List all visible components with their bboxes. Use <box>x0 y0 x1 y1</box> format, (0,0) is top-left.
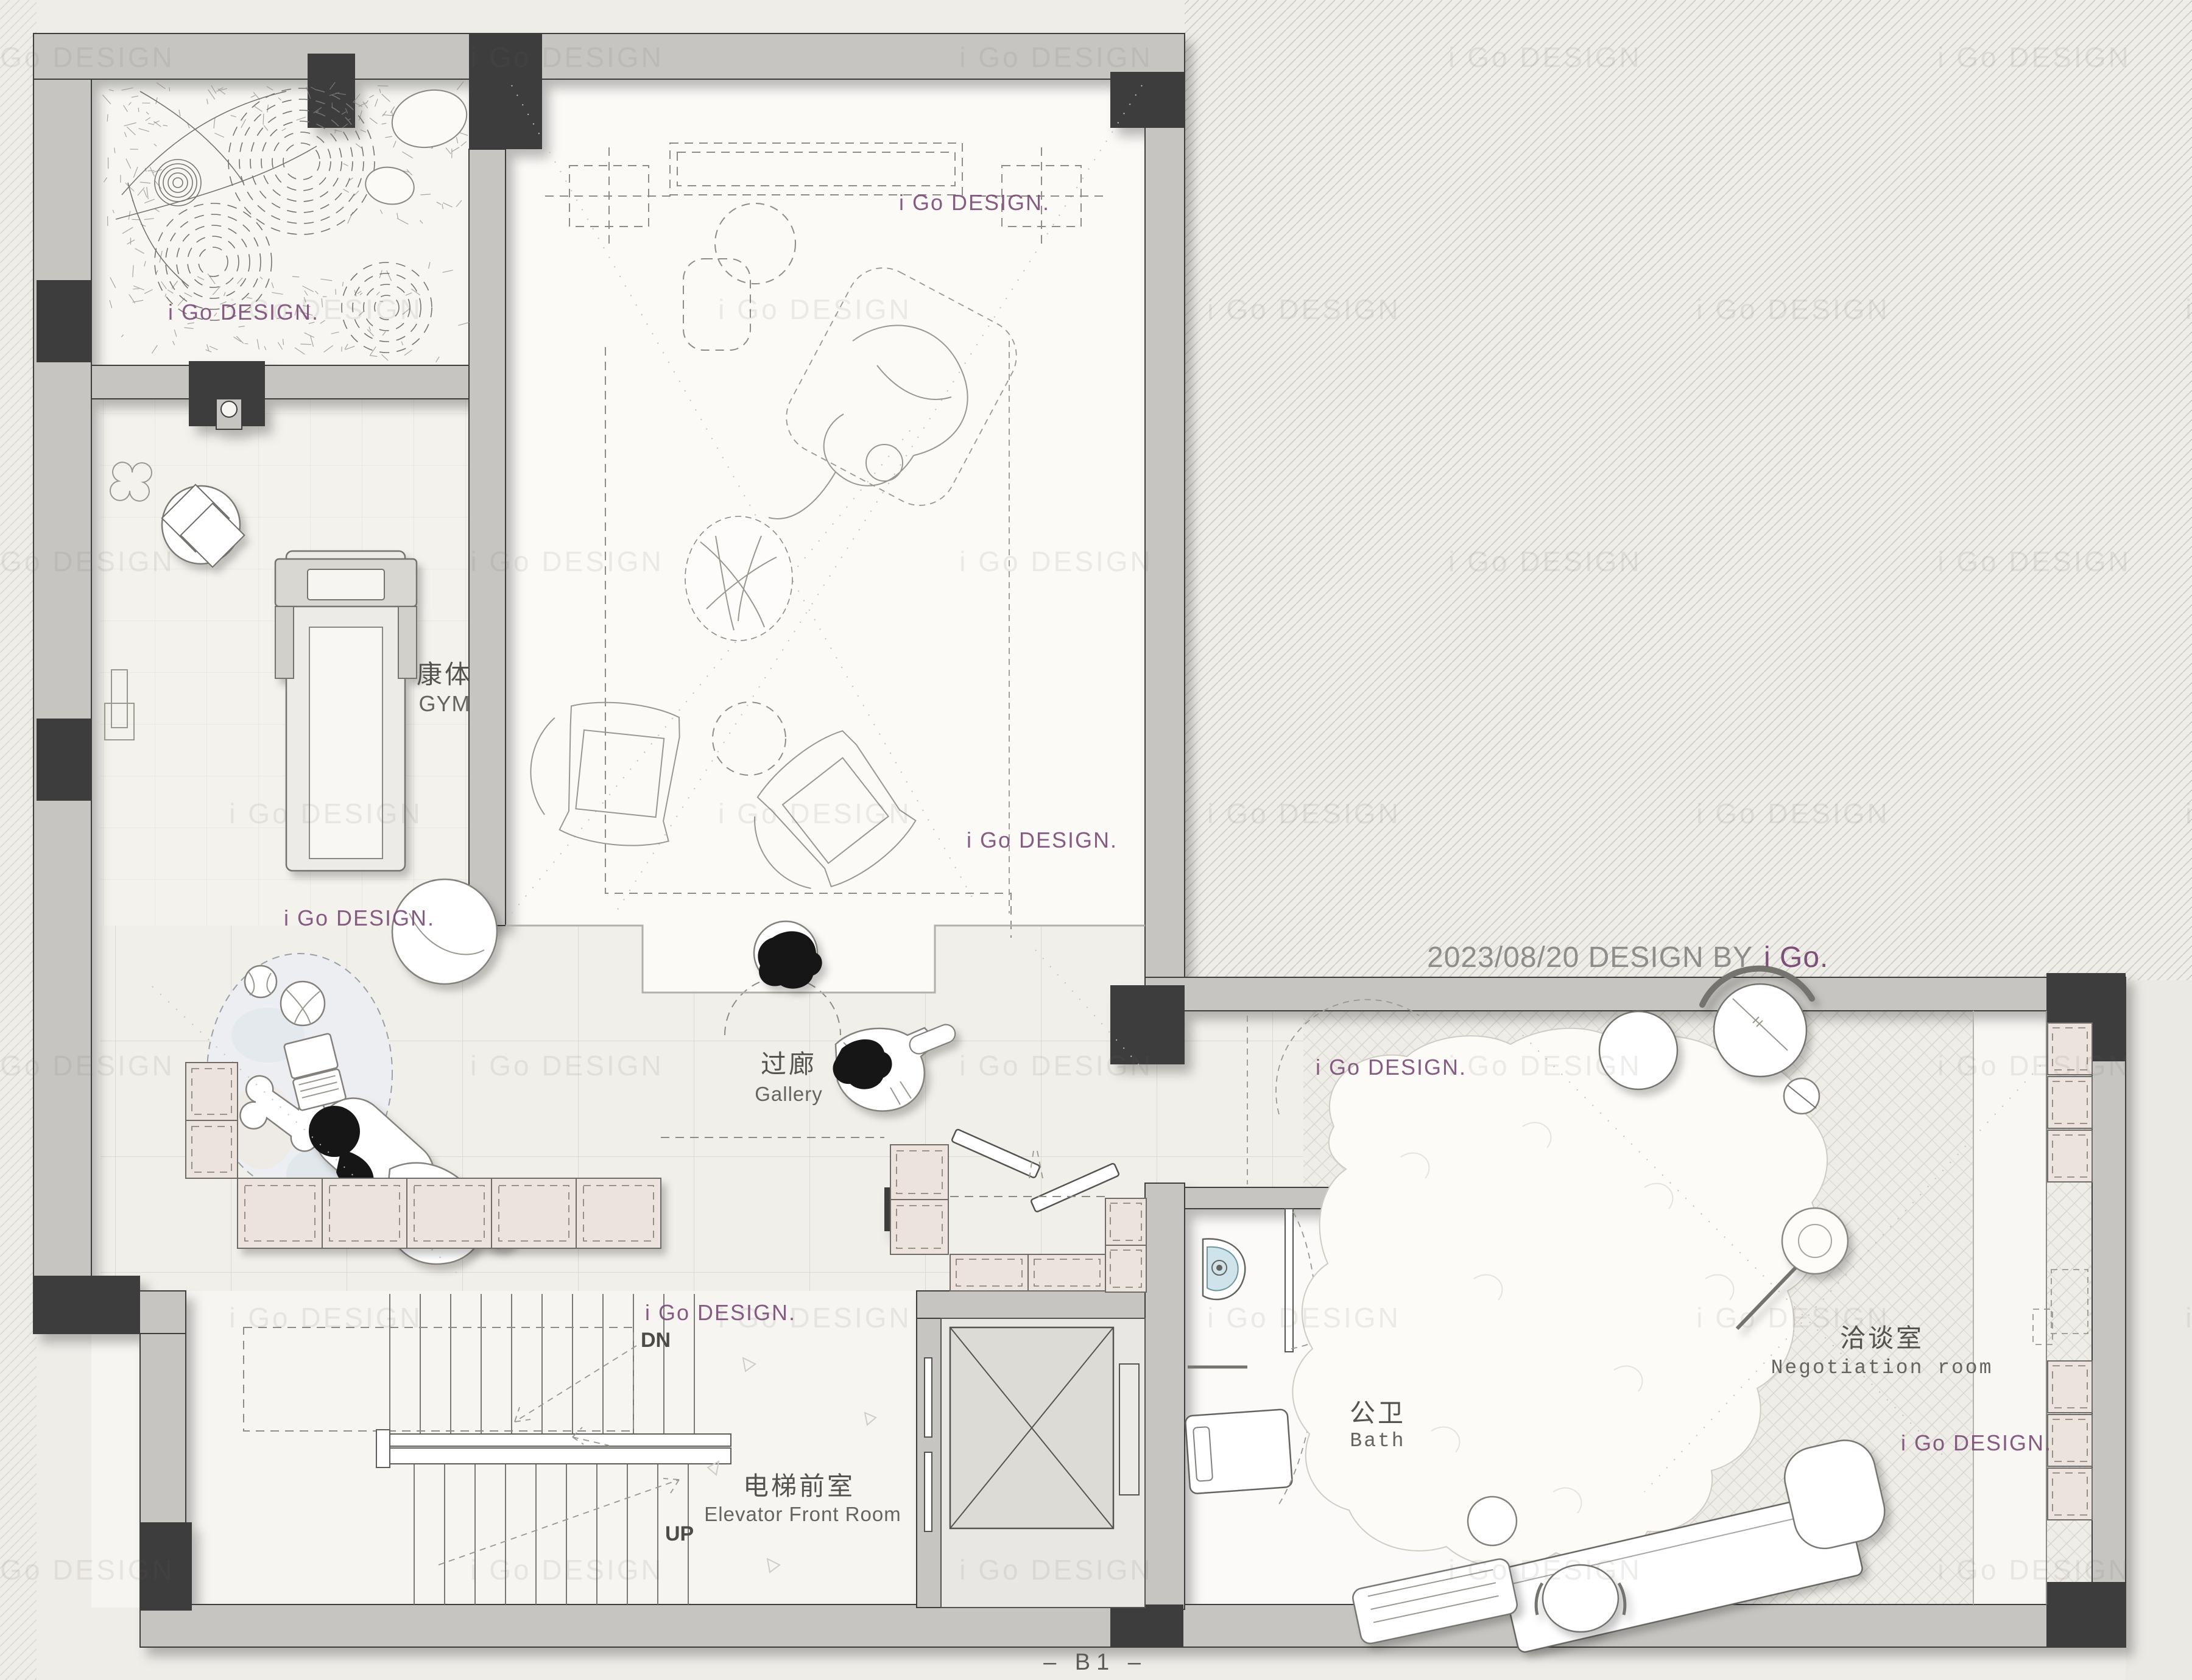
watermark-tile: i Go DESIGN <box>1448 546 1642 577</box>
watermark-tile: i Go DESIGN <box>470 1050 664 1081</box>
column <box>33 1276 140 1334</box>
stair-center-rail <box>376 1430 731 1467</box>
watermark-tile: i Go DESIGN <box>1937 41 2131 73</box>
watermark-tile: i Go DESIGN <box>2185 293 2192 325</box>
watermark-tile: i Go DESIGN <box>0 546 175 577</box>
watermark-tile: i Go DESIGN <box>959 41 1153 73</box>
elevator-counterweight <box>1119 1364 1139 1495</box>
design-brand-text: i Go. <box>1764 941 1828 974</box>
toy-ball <box>281 982 325 1025</box>
wall-hall-left <box>469 149 506 926</box>
gym-label-en: GYM <box>418 691 470 716</box>
elevator-door-panel <box>925 1358 932 1437</box>
column <box>308 54 355 128</box>
column <box>1110 1604 1183 1647</box>
column <box>37 719 91 801</box>
wall-elevator-top <box>917 1291 1145 1318</box>
watermark-accent: i Go DESIGN. <box>967 828 1118 852</box>
watermark-tile: i Go DESIGN <box>718 798 912 829</box>
watermark-accent: i Go DESIGN. <box>899 190 1050 215</box>
gym-label-zh: 康体 <box>417 660 473 689</box>
exterior-right-margin <box>2126 980 2192 1680</box>
elevator-door-panel <box>925 1452 932 1531</box>
wall-hall-right <box>1145 79 1185 986</box>
watermark-tile: i Go DESIGN <box>1937 1050 2131 1081</box>
floor-level-label: – B1 – <box>1043 1650 1147 1675</box>
watermark-tile: i Go DESIGN <box>470 41 664 73</box>
door-pivot-icon <box>221 401 237 417</box>
watermark-tile: i Go DESIGN <box>470 1554 664 1586</box>
watermark-tile: i Go DESIGN <box>229 798 423 829</box>
round-bowl-seat <box>392 879 497 984</box>
watermark-tile: i Go DESIGN <box>1207 293 1401 325</box>
watermark-tile: i Go DESIGN <box>1448 41 1642 73</box>
watermark-tile: i Go DESIGN <box>959 546 1153 577</box>
watermark-accent: i Go DESIGN. <box>645 1300 796 1325</box>
design-date-text: 2023/08/20 DESIGN BY <box>1427 941 1753 974</box>
watermark-tile: i Go DESIGN <box>229 1302 423 1334</box>
shoe-cabinet-vertical <box>186 1063 238 1178</box>
watermark-tile: i Go DESIGN <box>1448 1050 1642 1081</box>
shoe-cabinet-row <box>238 1178 661 1248</box>
gallery-label-zh: 过廊 <box>761 1050 817 1078</box>
stool <box>1468 1497 1517 1545</box>
watermark-accent: i Go DESIGN. <box>168 300 319 325</box>
stairs-up-label: UP <box>665 1522 694 1545</box>
gallery-label-en: Gallery <box>755 1083 823 1105</box>
signature: 2023/08/20 DESIGN BY i Go. <box>1427 941 1828 974</box>
toilet <box>1185 1409 1293 1494</box>
exterior-hatch-left-margin <box>0 0 37 1680</box>
column <box>2046 1582 2126 1647</box>
negotiation-room-label-zh: 洽谈室 <box>1840 1324 1924 1352</box>
exterior-hatch-top-right <box>1185 0 2192 980</box>
watermark-tile: i Go DESIGN <box>718 293 912 325</box>
elevator-front-room-label-zh: 电梯前室 <box>743 1472 855 1500</box>
elevator-front-room-label-en: Elevator Front Room <box>704 1503 901 1525</box>
watermark-tile: i Go DESIGN <box>1207 1302 1401 1334</box>
watermark-tile: i Go DESIGN <box>959 1050 1153 1081</box>
watermark-tile: i Go DESIGN <box>1448 1554 1642 1586</box>
watermark-accent: i Go DESIGN. <box>284 905 435 930</box>
wall-wing-top <box>1145 977 2126 1011</box>
watermark-tile: i Go DESIGN <box>1696 798 1890 829</box>
watermark-tile: i Go DESIGN <box>1696 293 1890 325</box>
bath-label-zh: 公卫 <box>1350 1399 1406 1427</box>
watermark-tile: i Go DESIGN <box>0 1554 175 1586</box>
stairs-down-label: DN <box>641 1329 671 1352</box>
watermark-tile: i Go DESIGN <box>959 1554 1153 1586</box>
watermark-tile: i Go DESIGN <box>2185 1302 2192 1334</box>
watermark-accent: i Go DESIGN. <box>1316 1055 1467 1080</box>
column <box>37 280 91 362</box>
watermark-tile: i Go DESIGN <box>2185 798 2192 829</box>
watermark-tile: i Go DESIGN <box>470 546 664 577</box>
yarn-ball <box>685 516 792 641</box>
watermark-tile: i Go DESIGN <box>1207 798 1401 829</box>
watermark-tile: i Go DESIGN <box>1937 546 2131 577</box>
wall-wing-right <box>2092 1011 2126 1647</box>
floor-plan-page: i Go DESIGNi Go DESIGNi Go DESIGNi Go DE… <box>0 0 2192 1680</box>
toy-ball <box>245 966 277 997</box>
watermark-tile: i Go DESIGN <box>1937 1554 2131 1586</box>
watermark-accent: i Go DESIGN. <box>1901 1430 2052 1455</box>
hall-floor <box>506 79 1145 993</box>
bath-label-en: Bath <box>1350 1430 1405 1452</box>
wall-garden-bottom <box>91 365 469 399</box>
negotiation-room-label-en: Negotiation room <box>1771 1357 1993 1379</box>
wall-hall-right-lower <box>1145 1183 1185 1609</box>
floor-plan-drawing: i Go DESIGNi Go DESIGNi Go DESIGNi Go DE… <box>0 0 2192 1680</box>
elevator-cab <box>950 1327 1113 1528</box>
watermark-tile: i Go DESIGN <box>0 41 175 73</box>
column <box>1110 72 1185 128</box>
watermark-tile: i Go DESIGN <box>0 1050 175 1081</box>
wall-left <box>33 79 91 1291</box>
wing-side-strip <box>1973 1011 2046 1604</box>
